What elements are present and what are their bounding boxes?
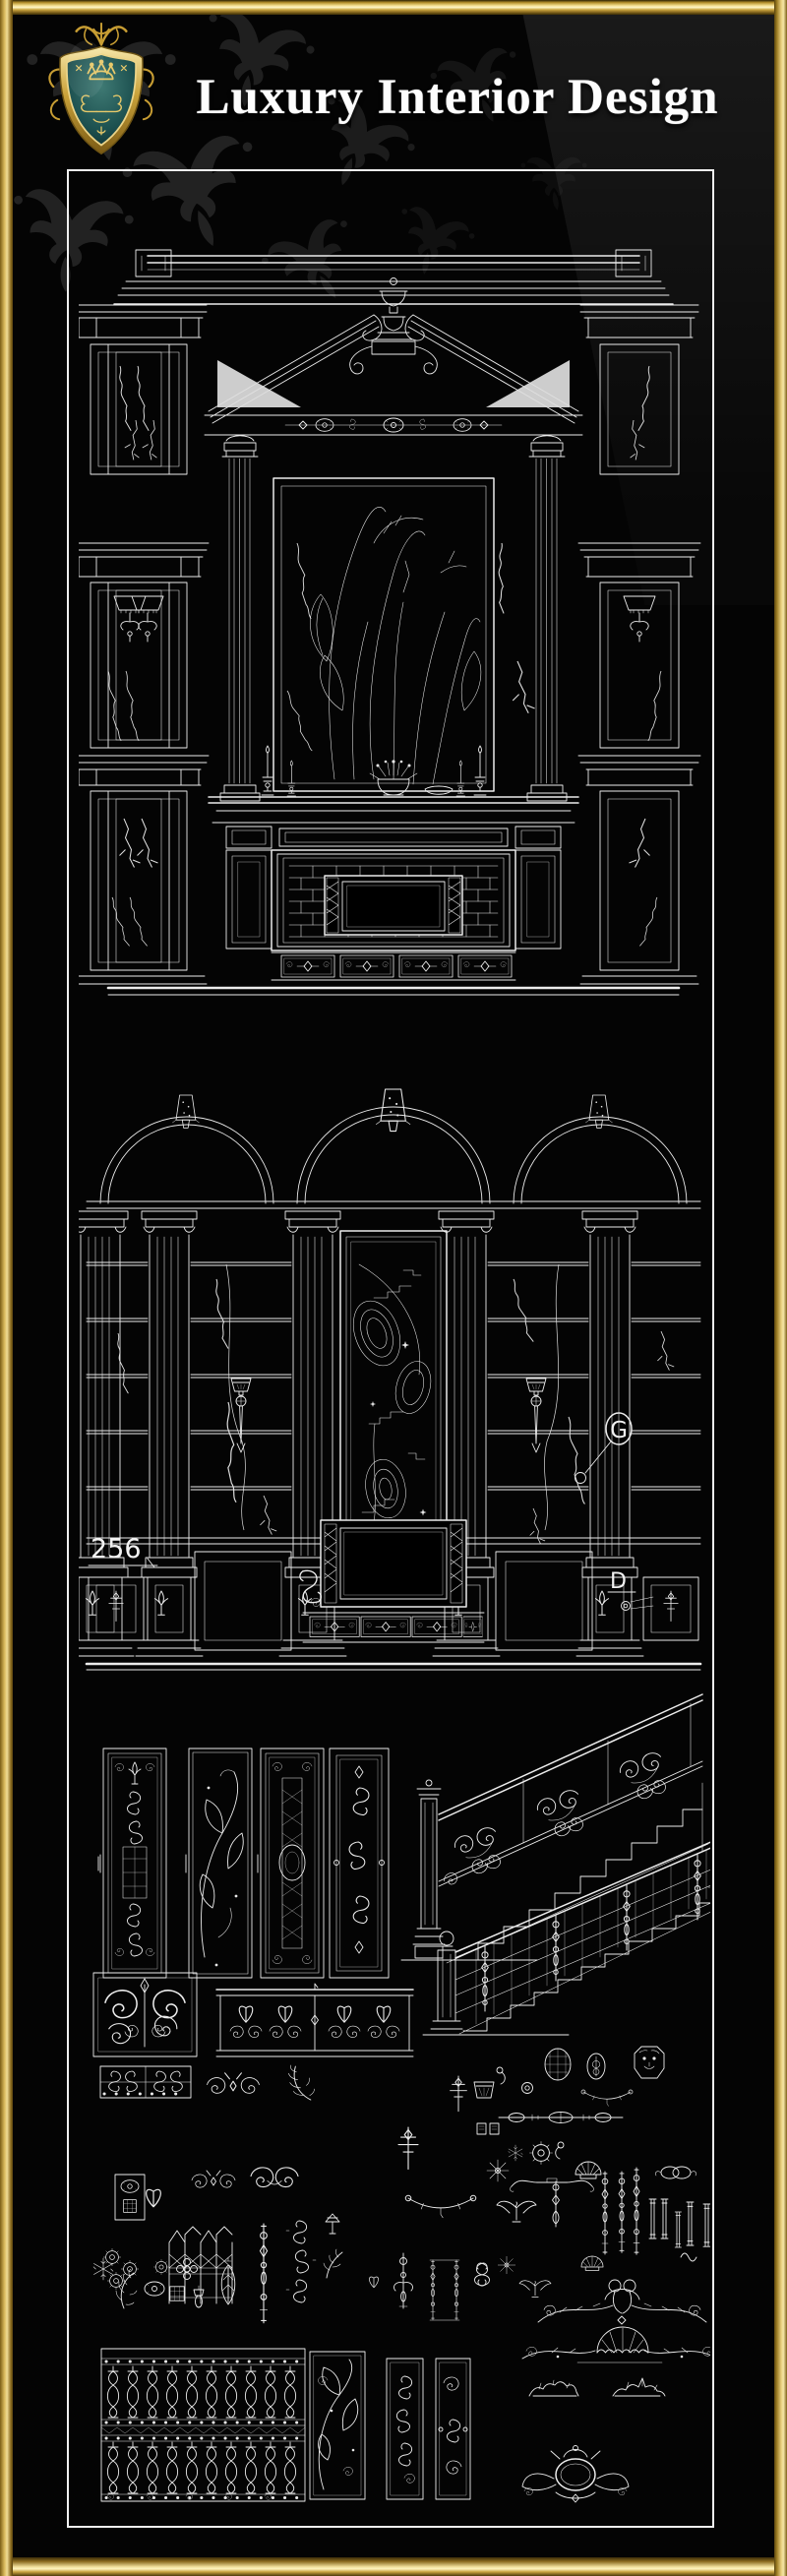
side-tower-panel (79, 305, 191, 984)
gold-frame-right (774, 0, 787, 2576)
arches (87, 1089, 700, 1208)
grille-panel-3 (258, 1748, 324, 1978)
page-title: Luxury Interior Design (157, 69, 757, 126)
fireplace-elevation-drawing (79, 248, 708, 998)
botanical-art-panel (273, 478, 494, 791)
bowl (425, 786, 453, 794)
gold-frame-left (0, 0, 13, 2576)
right-column (527, 436, 567, 801)
urn-finial (350, 278, 438, 374)
arched-wall-elevation-drawing: 256 G D (79, 1087, 708, 1678)
mantel-shelf (209, 746, 578, 848)
torch-sconce-right (526, 1379, 546, 1452)
heraldic-shield-crest-icon (43, 20, 159, 163)
firebox (226, 850, 561, 951)
grille-panel-1 (98, 1748, 166, 1978)
stair-railing-scrollwork (401, 1694, 708, 1963)
cartouche-ornament (522, 2446, 629, 2503)
narrow-scroll-panel-2 (436, 2359, 470, 2499)
tag-d-label: D (610, 1569, 627, 1594)
crown-crest-ornament (538, 2280, 706, 2324)
horizontal-railing-section (216, 1984, 413, 2056)
ornament-field (93, 2047, 710, 2323)
poster: Luxury Interior Design (0, 0, 787, 2576)
shell-crest-ornament (522, 2327, 710, 2362)
grille-panel-4 (330, 1748, 389, 1978)
ironwork-ornament-collection-drawing (71, 1685, 710, 2526)
left-column (220, 436, 260, 801)
rosette-frieze (285, 418, 502, 432)
torch-sconce-left (231, 1379, 251, 1452)
grille-panel-2 (186, 1748, 252, 1978)
tag-g-label: G (610, 1418, 628, 1443)
shelf-lines (87, 1262, 700, 1544)
small-ornament-pair (529, 2378, 665, 2396)
dimension-label: 256 (91, 1534, 142, 1564)
entablature (114, 250, 673, 304)
stair-railing-balusters (423, 1838, 710, 2035)
gold-frame-top (0, 0, 787, 15)
drawer-row (272, 952, 515, 980)
balustrade-grid-panel (101, 2349, 305, 2501)
scroll-leaf-panel (310, 2352, 365, 2499)
gold-frame-bottom (0, 2557, 787, 2576)
narrow-scroll-panel-1 (387, 2359, 423, 2499)
iron-gate-panel (93, 1973, 197, 2056)
